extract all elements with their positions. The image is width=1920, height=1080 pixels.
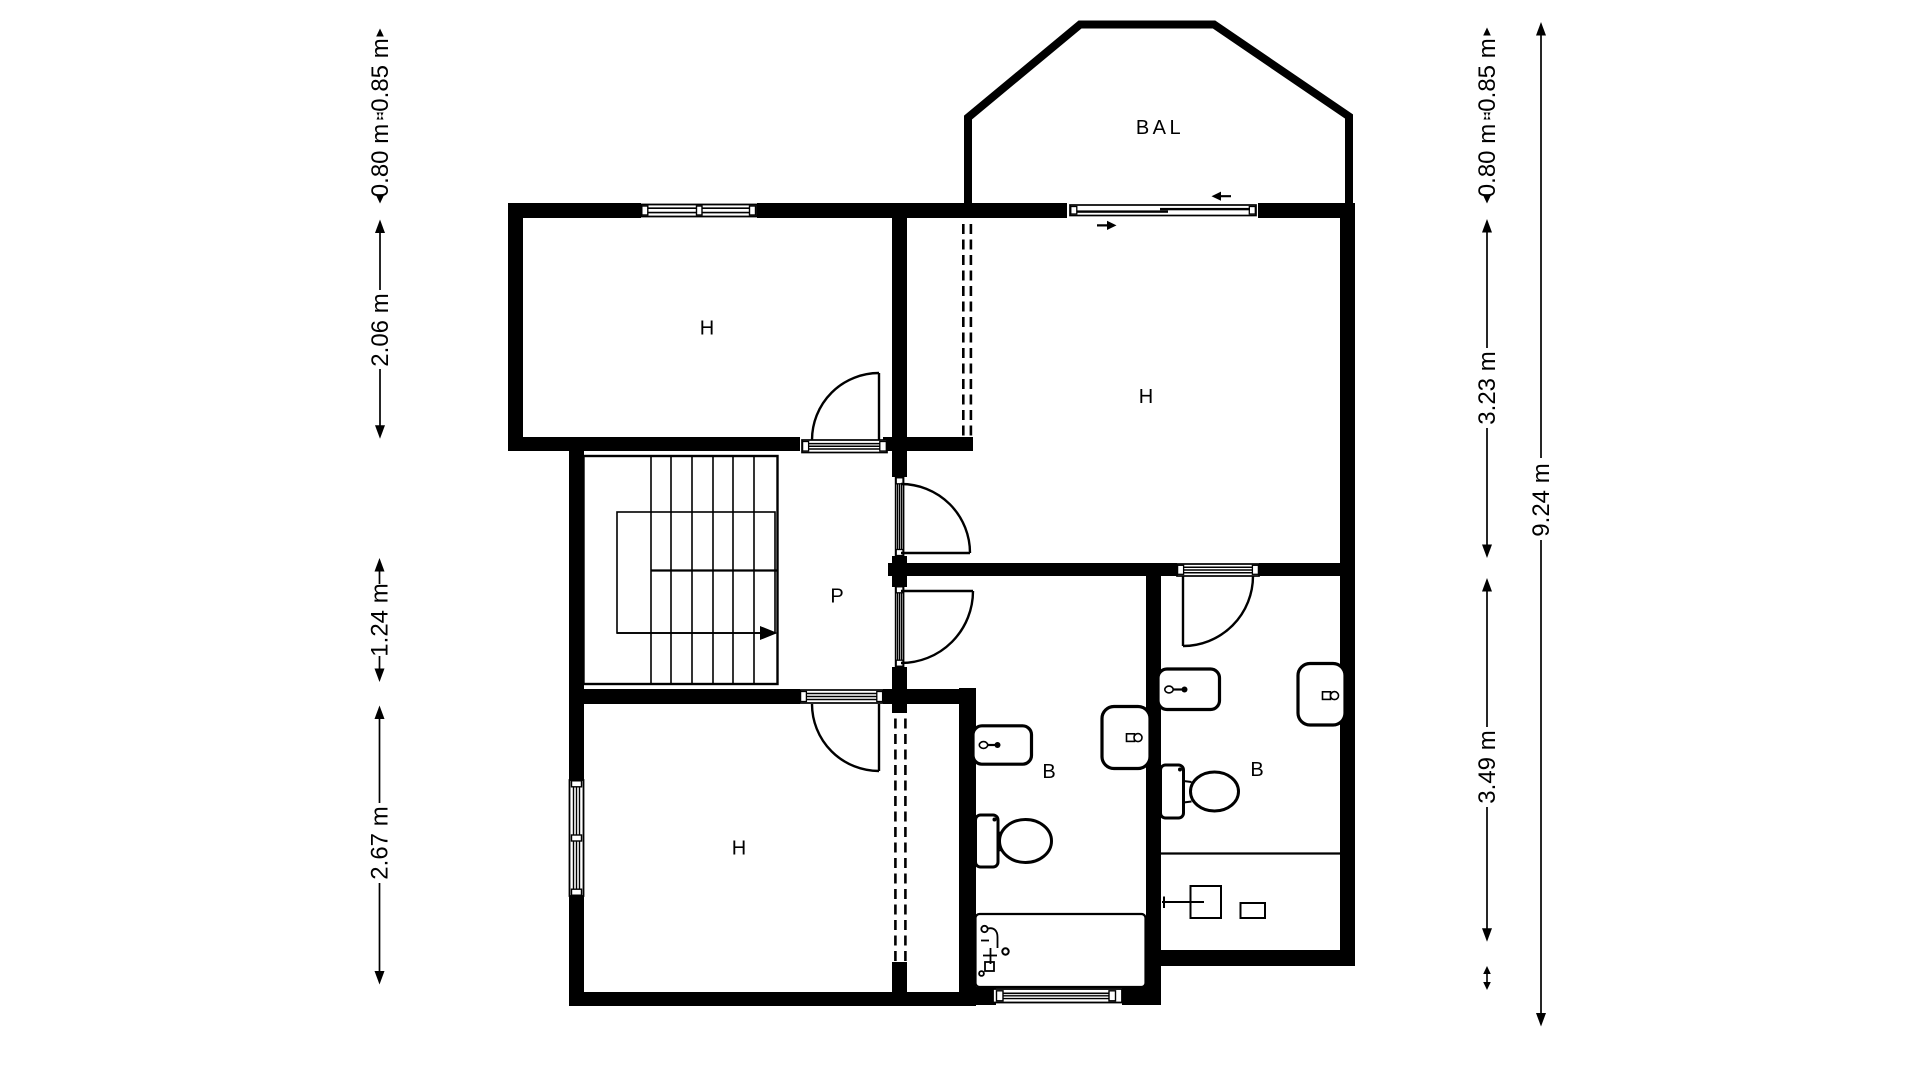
svg-text:0.80 m: 0.80 m — [367, 124, 394, 197]
svg-text:0.85 m: 0.85 m — [367, 38, 394, 111]
svg-text:3.23 m: 3.23 m — [1474, 351, 1501, 424]
svg-text:B: B — [1250, 759, 1263, 781]
svg-text:0.85 m: 0.85 m — [1474, 38, 1501, 111]
svg-text:1.24 m: 1.24 m — [367, 583, 394, 656]
svg-text:H: H — [700, 318, 714, 340]
svg-text:P: P — [830, 586, 843, 608]
svg-text:2.67 m: 2.67 m — [367, 806, 394, 879]
svg-text:9.24 m: 9.24 m — [1528, 463, 1555, 536]
svg-text:H: H — [732, 838, 746, 860]
svg-text:2.06 m: 2.06 m — [367, 293, 394, 366]
svg-text:3.49 m: 3.49 m — [1474, 730, 1501, 803]
svg-text:H: H — [1139, 386, 1153, 408]
svg-text:BAL: BAL — [1136, 117, 1184, 139]
svg-text:0.80 m: 0.80 m — [1474, 124, 1501, 197]
svg-text:B: B — [1042, 761, 1055, 783]
